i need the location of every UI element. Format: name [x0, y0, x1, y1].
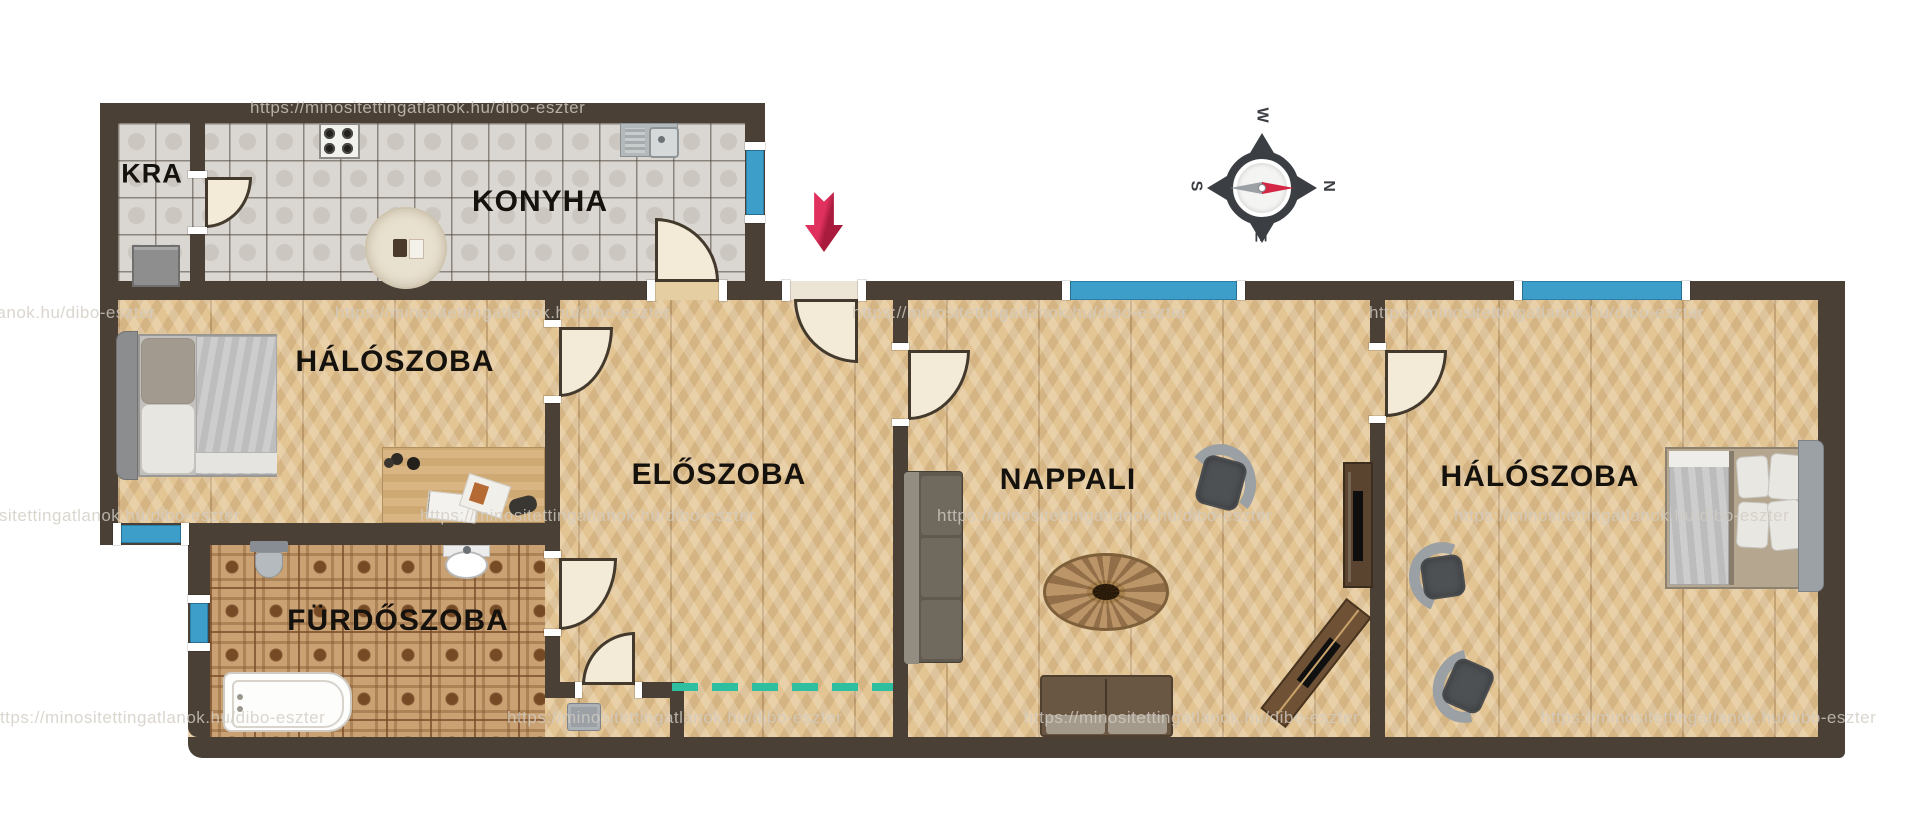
entrance-arrow-icon: [805, 192, 843, 252]
headphones-icon: [507, 494, 538, 518]
wall-bottom: [188, 737, 1845, 758]
door-jamb: [858, 280, 866, 301]
window-jamb: [181, 523, 189, 545]
compass-icon: W N E S: [1178, 98, 1348, 258]
wall-pantry-lower: [190, 228, 205, 281]
wall-top-kitchen: [100, 103, 765, 123]
wall-band-top-1: [100, 281, 655, 300]
compass-spike-north: [1250, 133, 1274, 153]
bed-blanket: [1669, 451, 1729, 585]
threshold-kitchen-hall: [655, 281, 719, 300]
wall-band-top-3: [858, 281, 1845, 300]
window-jamb: [1237, 281, 1245, 300]
window-bathroom: [190, 603, 208, 643]
door-jamb: [544, 551, 561, 558]
compass-spike-east: [1297, 176, 1317, 200]
window-bedroom2: [1522, 281, 1682, 300]
window-jamb: [745, 142, 765, 150]
bed-headboard: [1798, 440, 1824, 592]
floor-plan: KRA KONYHA HÁLÓSZOBA ELŐSZOBA FÜRDŐSZOBA…: [0, 0, 1920, 815]
door-jamb: [575, 682, 582, 698]
bed-pillow: [141, 404, 195, 474]
armchair-icon: [1403, 536, 1482, 617]
room-label-haloszoba-1: HÁLÓSZOBA: [296, 345, 495, 379]
door-jamb: [544, 629, 561, 636]
door-jamb: [1369, 343, 1386, 350]
door-jamb: [892, 419, 909, 426]
dining-table-icon: [365, 207, 447, 289]
window-kitchen: [746, 150, 764, 215]
wall-pantry-upper: [190, 123, 205, 177]
window-jamb: [188, 643, 210, 651]
door-jamb: [782, 280, 790, 301]
bed-icon: [116, 331, 278, 480]
radiator-icon: [567, 703, 601, 731]
kitchen-sink-icon: [620, 123, 678, 157]
sofa-icon: [903, 471, 963, 663]
rug-icon: [1043, 553, 1169, 631]
compass-label-north: N: [1319, 180, 1337, 192]
toilet-icon: [250, 541, 288, 579]
tv-cabinet-icon: [1343, 462, 1373, 588]
room-label-haloszoba-2: HÁLÓSZOBA: [1441, 460, 1640, 494]
room-label-furdoszoba: FÜRDŐSZOBA: [287, 604, 509, 638]
window-nappali: [1070, 281, 1237, 300]
door-jamb: [544, 396, 561, 403]
door-jamb: [892, 343, 909, 350]
door-jamb: [544, 320, 561, 327]
door-jamb: [188, 171, 207, 178]
window-bedroom1: [121, 525, 181, 543]
door-jamb: [1369, 416, 1386, 423]
door-jamb: [188, 227, 207, 234]
loveseat-icon: [1040, 675, 1173, 737]
bed-headboard: [116, 331, 138, 480]
window-jamb: [745, 215, 765, 223]
bathtub-icon: [223, 672, 352, 732]
door-jamb: [635, 682, 642, 698]
window-jamb: [1062, 281, 1070, 300]
compass-label-south: S: [1186, 181, 1204, 192]
wall-hall-left-3: [545, 630, 560, 682]
desk-icon: [382, 447, 545, 523]
stove-icon: [319, 123, 360, 159]
wall-hall-left-2: [545, 397, 560, 558]
room-label-kamra: KRA: [121, 159, 183, 190]
wall-band-top-2: [719, 281, 790, 300]
window-jamb: [1514, 281, 1522, 300]
washbasin-icon: [443, 545, 490, 580]
room-label-konyha: KONYHA: [472, 185, 608, 219]
compass-label-east: E: [1250, 232, 1268, 243]
window-jamb: [188, 595, 210, 603]
bed-icon: [1665, 440, 1825, 592]
window-jamb: [113, 523, 121, 545]
virtual-boundary-dash: [672, 683, 893, 691]
threshold-entrance: [790, 281, 858, 300]
bed-pillow: [141, 338, 195, 404]
window-jamb: [1682, 281, 1690, 300]
door-jamb: [719, 280, 727, 301]
compass-label-west: W: [1253, 107, 1271, 122]
exterior-gap: [100, 545, 188, 758]
pantry-cabinet-icon: [132, 245, 180, 287]
compass-spike-west: [1207, 176, 1227, 200]
room-label-nappali: NAPPALI: [1000, 463, 1136, 497]
door-jamb: [647, 280, 655, 301]
room-label-eloszoba: ELŐSZOBA: [632, 458, 807, 492]
